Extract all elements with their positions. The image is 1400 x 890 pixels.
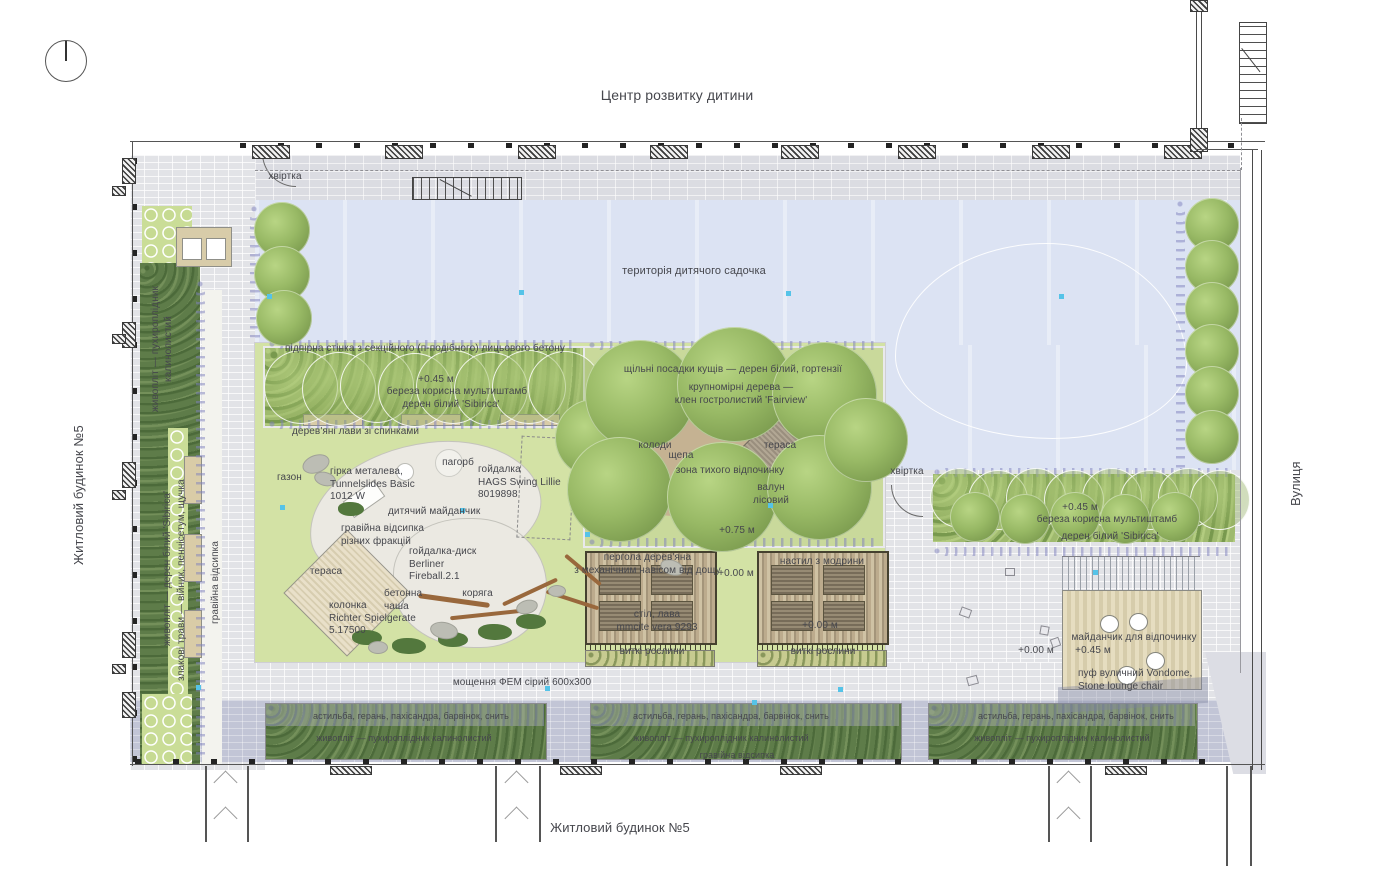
birch-label: береза корисна мультиштамб xyxy=(382,386,532,399)
window-mark xyxy=(112,186,126,196)
wall-segment xyxy=(122,632,136,658)
snag-label: коряга xyxy=(455,588,500,601)
utility-marker xyxy=(519,290,524,295)
entrance-recess xyxy=(1048,766,1092,842)
bottom-facade-line xyxy=(130,764,1265,765)
entrance-stoop xyxy=(518,145,556,159)
shrub-clump xyxy=(516,614,546,629)
stairs-top-right xyxy=(1239,22,1267,124)
tree-shadow-fringe xyxy=(933,547,1233,556)
utility-marker xyxy=(1093,570,1098,575)
boulder-stone xyxy=(548,585,566,597)
gravel-fractions-label: гравійна відсипка різних фракцій xyxy=(341,523,424,548)
door-chevron xyxy=(504,770,528,794)
entrance-recess xyxy=(1226,766,1252,866)
door-chevron xyxy=(213,770,237,794)
wall-segment xyxy=(122,158,136,184)
entrance-stoop xyxy=(650,145,688,159)
tree xyxy=(1185,410,1239,464)
top-building-label: Центр розвитку дитини xyxy=(577,87,777,105)
birch-label: береза корисна мультиштамб xyxy=(1032,514,1182,527)
entrance-stoop xyxy=(898,145,936,159)
large-trees-label: крупномірні дерева — клен гостролистий '… xyxy=(591,382,891,407)
dogwood-label: дерен білий 'Sibirica' xyxy=(1035,531,1185,544)
wall-segment xyxy=(1105,766,1147,775)
gravel-vertical-label: гравійна відсипка xyxy=(210,541,223,624)
entrance-stoop xyxy=(781,145,819,159)
tree xyxy=(256,290,312,346)
stairs-top xyxy=(412,177,522,200)
window-mark xyxy=(112,664,126,674)
grasses-vertical-label: злакові трави — війник, пеннісетум, щучк… xyxy=(176,479,189,681)
planter-box xyxy=(182,238,202,260)
planter-box xyxy=(206,238,226,260)
boundary-dashed xyxy=(255,170,1240,172)
utility-marker xyxy=(786,291,791,296)
column-label: колонка Richter Spielgerate 5.17500 xyxy=(329,600,416,638)
pouf xyxy=(1100,615,1119,633)
window-mark xyxy=(112,334,126,344)
wall-connector xyxy=(1196,149,1258,150)
retaining-wall-label: підпірна стінка з секційного (п-подібног… xyxy=(250,343,600,356)
plan-boundary-right xyxy=(1240,168,1241,673)
utility-marker xyxy=(752,700,757,705)
north-arrow-needle xyxy=(65,41,67,61)
wall-segment xyxy=(122,462,136,488)
playground-label: дитячий майданчик xyxy=(388,506,480,519)
hedge-label: живопліт — пухироплідник калинолистий xyxy=(942,733,1182,744)
utility-marker xyxy=(196,685,201,690)
hedge-physocarpus-vertical-label: живопліт — пухироплідник калинолистий xyxy=(150,274,175,424)
utility-marker xyxy=(280,505,285,510)
planter-table xyxy=(176,227,232,267)
paving-label: мощення ФЕМ сірий 600х300 xyxy=(442,677,602,690)
slide-label: гірка металева, Tunnelslides Basic 1012 … xyxy=(330,466,415,504)
elevation-label: +0.00 м xyxy=(701,568,771,581)
gate-label: хвіртка xyxy=(872,466,942,479)
window-mark xyxy=(112,490,126,500)
larch-deck-label: настил з модрини xyxy=(747,556,897,569)
terrace-label: тераса xyxy=(296,566,356,579)
hedge-label: живопліт — пухироплідник калинолистий xyxy=(284,733,524,744)
terrace-label: тераса xyxy=(750,440,810,453)
hedge-pattern-bottom xyxy=(142,694,192,764)
boundary-dashed-corner xyxy=(1241,118,1243,170)
top-facade-line xyxy=(130,141,1265,142)
street-label: Вулиця xyxy=(1288,461,1304,506)
bottom-building-label: Житловий будинок №5 xyxy=(530,820,710,836)
utility-marker xyxy=(1059,294,1064,299)
groundcover-label: астильба, герань, пахісандра, барвінок, … xyxy=(956,711,1196,722)
elevation-label: +0.00 м xyxy=(785,620,855,633)
wall-segment xyxy=(560,766,602,775)
street-edge-line xyxy=(1252,150,1262,770)
pergola-grate xyxy=(771,565,813,595)
wall-segment xyxy=(1190,0,1208,12)
entrance-recess xyxy=(205,766,249,842)
street-furniture xyxy=(1005,568,1015,576)
utility-marker xyxy=(838,687,843,692)
kindergarten-label: територія дитячого садочка xyxy=(594,265,794,279)
hedge-label: живопліт — пухироплідник калинолистий xyxy=(601,733,841,744)
boulder-stone xyxy=(368,641,388,654)
rest-deck-ramp xyxy=(1062,556,1200,591)
pergola-grate xyxy=(823,565,865,595)
dense-shrubs-label: щільні посадки кущів — дерен білий, горт… xyxy=(583,364,883,377)
tree-shadow-fringe xyxy=(1176,200,1185,470)
rest-area-label: майданчик для відпочинку xyxy=(1064,632,1204,645)
elevation-label: +0.45 м xyxy=(1045,502,1115,515)
pouf-label: пуф вуличний Vondome, Stone lounge chair xyxy=(1078,668,1192,693)
elevation-label: +0.00 м xyxy=(1001,645,1071,658)
site-plan: Центр розвитку дитини Житловий будинок №… xyxy=(0,0,1400,890)
entrance-stoop xyxy=(385,145,423,159)
shrub-clump xyxy=(392,638,426,654)
north-arrow-icon xyxy=(45,40,87,82)
wall-segment xyxy=(780,766,822,775)
lawn-label: газон xyxy=(277,472,302,485)
tree xyxy=(950,492,1000,542)
hedge-dogwood-vertical-label: живопліт — дерен білий 'Sibirica' xyxy=(162,491,175,646)
groundcover-label: астильба, герань, пахісандра, барвінок, … xyxy=(611,711,851,722)
pouf xyxy=(1129,613,1148,631)
boulder-label: валун лісовий xyxy=(741,482,801,507)
utility-marker xyxy=(585,532,590,537)
climbing-plants-label: виткі рослини xyxy=(592,646,712,659)
wood-chips-label: щепа xyxy=(651,450,711,463)
wall-segment xyxy=(330,766,372,775)
shrub-clump xyxy=(478,624,512,640)
entrance-stoop xyxy=(252,145,290,159)
groundcover-label: астильба, герань, пахісандра, барвінок, … xyxy=(291,711,531,722)
gravel-strip-left xyxy=(202,290,222,765)
benches-label: дерев'яні лави зі спинками xyxy=(292,426,419,439)
wall-segment xyxy=(122,692,136,718)
dogwood-label: дерен білий 'Sibirica' xyxy=(376,399,526,412)
left-facade-columns xyxy=(133,150,137,762)
climbing-plants-label: виткі рослини xyxy=(763,646,883,659)
elevation-label: +0.75 м xyxy=(702,525,772,538)
table-bench-label: стіл, лава mmcite vera 9293 xyxy=(612,609,702,634)
street-furniture xyxy=(1039,625,1049,635)
paving-top-walk xyxy=(255,155,1240,203)
left-building-label: Житловий будинок №5 xyxy=(71,425,87,565)
gate-label: хвіртка xyxy=(250,171,320,184)
utility-marker xyxy=(267,294,272,299)
door-chevron xyxy=(1056,806,1080,830)
quiet-zone-label: зона тихого відпочинку xyxy=(655,465,805,478)
door-chevron xyxy=(504,806,528,830)
door-chevron xyxy=(213,806,237,830)
swing-label: гойдалка HAGS Swing Lillie 8019898 xyxy=(478,464,561,502)
disc-swing-label: гойдалка-диск Berliner Fireball.2.1 xyxy=(409,546,476,584)
gravel-bed-label: гравійна відсипка xyxy=(657,750,817,761)
shrub-clump xyxy=(338,502,364,516)
entrance-stoop xyxy=(1032,145,1070,159)
elevation-label: +0.45 м xyxy=(401,374,471,387)
door-chevron xyxy=(1056,770,1080,794)
